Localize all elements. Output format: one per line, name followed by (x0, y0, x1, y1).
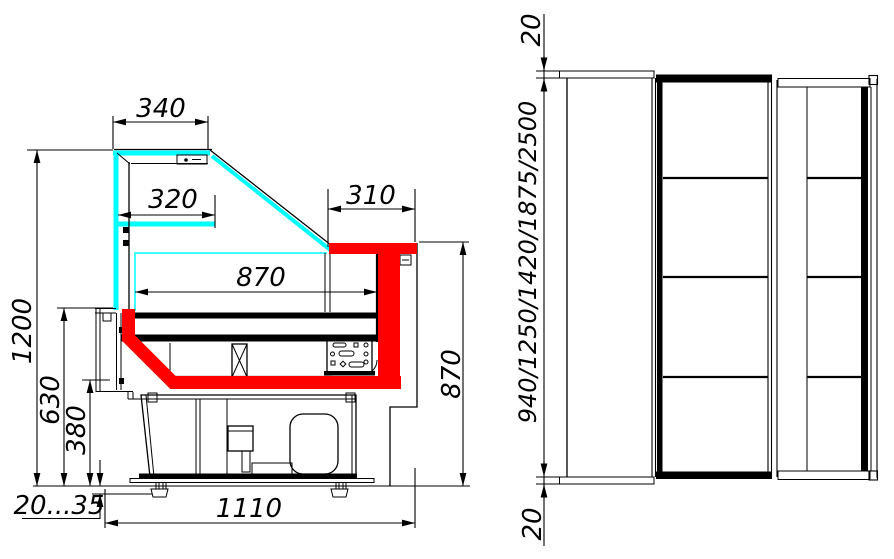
dim-label: 380 (62, 405, 92, 455)
dim-label: 20...35 (14, 491, 105, 521)
dim-label: 310 (346, 181, 396, 211)
technical-drawing: 340 320 310 870 870 (0, 0, 894, 559)
dim-label: 870 (437, 349, 467, 399)
bottom-trim-plate (560, 477, 655, 484)
top-bar (656, 75, 772, 83)
dimension-870-height: 870 (419, 242, 469, 486)
front-glass (212, 156, 333, 252)
dimension-top-20: 20 (517, 13, 547, 46)
machine-compartment (130, 393, 374, 497)
case-structure (33, 150, 470, 498)
dim-label: 940/1250/1420/1875/2500 (514, 101, 542, 423)
right-panel (778, 76, 878, 481)
shelf-bracket (123, 227, 129, 233)
drain-tray (252, 463, 292, 474)
worktop-support-red (378, 249, 400, 380)
dimension-310: 310 (328, 181, 415, 247)
dimension-630: 630 (36, 308, 113, 486)
cabinet-body (560, 71, 878, 484)
foot-right (331, 483, 348, 498)
bottom-plate (778, 471, 870, 480)
dimension-380: 380 (62, 380, 110, 486)
bottom-bar (656, 472, 772, 480)
right-post (861, 87, 868, 471)
top-plate (778, 79, 870, 88)
deck-bottom (121, 335, 379, 342)
dim-label: 20 (518, 507, 548, 540)
front-glass-frame (210, 150, 336, 249)
starter-box (228, 426, 253, 472)
glass-panels (113, 151, 333, 311)
deck-top (133, 313, 379, 319)
dimension-bottom-20: 20 (518, 507, 548, 540)
dim-label: 340 (136, 94, 186, 124)
dimensions-front-view: 20 940/1250/1420/1875/2500 20 (514, 13, 562, 546)
shelf-bracket (123, 240, 129, 246)
compressor (290, 414, 338, 474)
worktop-red (329, 243, 417, 254)
dim-label: 320 (148, 185, 198, 215)
dimension-340: 340 (113, 94, 208, 150)
base-frame (139, 474, 357, 479)
dimension-870-width: 870 (135, 263, 377, 293)
evaporator-box (232, 344, 247, 377)
left-post (657, 82, 663, 472)
control-panel (324, 339, 375, 376)
foot-left (151, 483, 168, 498)
base-plate (130, 479, 374, 483)
dim-label: 1200 (8, 298, 38, 364)
side-section-view: 340 320 310 870 870 (8, 94, 470, 528)
lamp-icon (184, 158, 188, 162)
dim-label: 1110 (216, 494, 282, 524)
dimension-foot-range: 20...35 (14, 460, 152, 521)
dimension-1200: 1200 (8, 150, 113, 486)
panel-base (324, 371, 375, 376)
dim-label: 870 (236, 263, 286, 293)
middle-panel (656, 75, 772, 480)
top-trim-plate (560, 71, 655, 78)
dimension-height-options: 940/1250/1420/1875/2500 (514, 101, 542, 423)
dim-label: 20 (517, 13, 547, 46)
front-elevation-view: 20 940/1250/1420/1875/2500 20 (514, 13, 878, 546)
display-area-outline (135, 253, 327, 311)
